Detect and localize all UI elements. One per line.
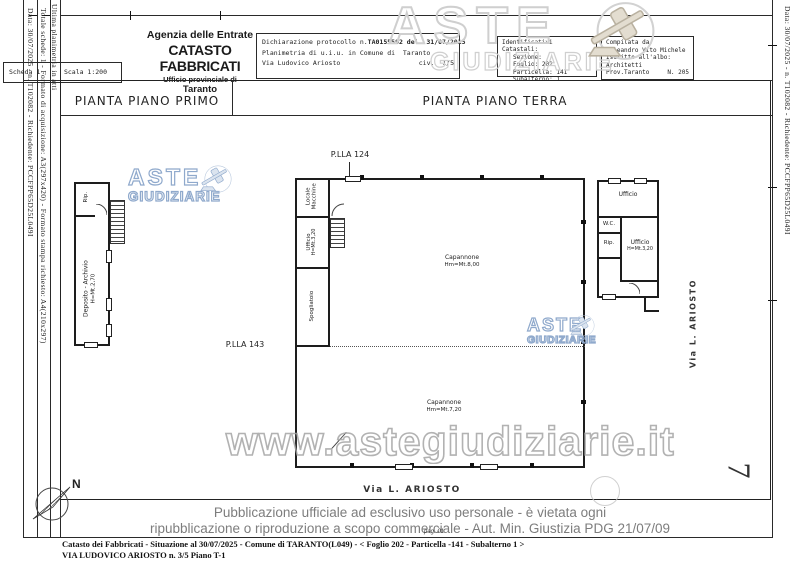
- pilaster: [470, 463, 474, 468]
- footer-page-note: pag. 01: [424, 529, 444, 535]
- title-divider: [232, 80, 233, 115]
- rb-ufficio-label: Ufficio H=Mt.3,20: [622, 240, 658, 252]
- window: [634, 178, 647, 184]
- rb-wc: W.C.: [597, 221, 621, 227]
- catastali-foglio: Foglio: 202: [502, 61, 592, 68]
- agency-name: Agenzia delle Entrate: [135, 29, 265, 41]
- parcel-124-leader: [349, 162, 350, 177]
- capannone-high-label: Capannone Hm=Mt.8,00: [430, 255, 494, 268]
- sidebar-print-format: Totale schede: 1 - Formato di acquisizio…: [39, 8, 48, 344]
- rb-stub-h: [644, 310, 659, 312]
- pilaster: [581, 280, 586, 284]
- top-rule: [60, 15, 772, 16]
- catastali-title: Identificativi Catastali:: [502, 39, 592, 54]
- opening: [480, 464, 498, 470]
- first-floor-rip-wall: [76, 215, 95, 217]
- pilaster: [350, 463, 354, 468]
- rb-ufficio-name: Ufficio: [622, 240, 658, 247]
- compilata-albo-value: Architetti: [606, 62, 689, 70]
- pilaster: [540, 175, 544, 180]
- register-tick: [768, 45, 777, 46]
- rb-wall-porch: [620, 280, 659, 282]
- protocol-value: TA0155592 del 31/07/2015: [368, 38, 466, 47]
- disclaimer-line2: ripubblicazione o riproduzione a scopo c…: [60, 521, 760, 536]
- ufficio-wall: [295, 267, 330, 269]
- sidebar-right-print-data: Data: 30/07/2025 - n. T102082 - Richiede…: [783, 6, 792, 235]
- parcel-124: P.LLA 124: [325, 150, 375, 159]
- capannone2-name: Capannone: [412, 400, 476, 407]
- height-divider-dotted: [330, 346, 585, 347]
- room-rip-first: Rip.: [83, 185, 89, 209]
- window: [106, 324, 112, 337]
- opening: [345, 176, 361, 182]
- right-guide: [772, 0, 773, 538]
- ground-stair: [330, 218, 345, 248]
- footer-address-line: VIA LUDOVICO ARIOSTO n. 3/5 Piano T-1: [62, 550, 226, 560]
- declaration-civ: civ. 1/5: [419, 59, 454, 68]
- compilata-title: Compilata da:: [606, 39, 689, 47]
- room-spogliatoio: Spogliatoio: [309, 279, 315, 333]
- deposito-name: Deposito - Archivio: [83, 254, 90, 324]
- room-deposito-label: Deposito - Archivio H=Mt.2,70: [83, 254, 96, 324]
- rb-wall-rip: [597, 257, 622, 259]
- capannone1-name: Capannone: [430, 255, 494, 262]
- declaration-street: Via Ludovico Ariosto: [262, 59, 340, 68]
- room-locale-macchine: Locale Macchine: [306, 176, 319, 216]
- north-letter: N: [72, 477, 81, 491]
- ufficio-line2: H=Mt.3,20: [312, 222, 318, 262]
- register-tick: [130, 11, 131, 20]
- window: [106, 298, 112, 311]
- opening: [395, 464, 413, 470]
- window: [608, 178, 621, 184]
- street-label-right: Via L. ARIOSTO: [688, 269, 697, 379]
- rb-ufficio-top: Ufficio: [597, 192, 659, 199]
- title-underline: [60, 115, 772, 116]
- pilaster: [420, 175, 424, 180]
- protocol-label: Dichiarazione protocollo n.: [262, 38, 368, 47]
- pilaster: [581, 400, 586, 404]
- compilata-num: N. 205: [667, 69, 689, 77]
- scan-page-number: 7: [721, 454, 758, 488]
- first-floor-stair: [110, 200, 125, 244]
- left-rooms-wall: [328, 178, 330, 347]
- scheda-value: 1: [32, 68, 40, 77]
- compilata-albo-label: Iscritto all'albo:: [606, 54, 689, 62]
- sidebar-print-data: Data: 30/07/2025 - n. T102082 - Richiede…: [26, 8, 35, 237]
- opening: [602, 294, 616, 300]
- rb-ufficio-height: H=Mt.3,20: [622, 247, 658, 253]
- declaration-line2: Planimetria di u.i.u. in Comune di Taran…: [262, 49, 454, 58]
- pilaster: [530, 463, 534, 468]
- compilata-name: Galeandro Vito Michele: [606, 47, 689, 55]
- footer-catasto-line: Catasto dei Fabbricati - Situazione al 3…: [62, 539, 524, 549]
- room-ufficio-ground: Ufficio H=Mt.3,20: [306, 222, 318, 262]
- capannone2-height: Hm=Mt.7,20: [412, 407, 476, 413]
- pilaster: [480, 175, 484, 180]
- catastali-particella: Particella: 141: [502, 69, 592, 76]
- door-arc: [628, 283, 640, 295]
- compilata-prov: Prov.Taranto: [606, 69, 649, 77]
- catastali-sezione: Sezione:: [502, 54, 592, 61]
- catasto-title: CATASTO FABBRICATI: [135, 42, 265, 74]
- disclaimer-line1: Pubblicazione ufficiale ad esclusivo uso…: [100, 505, 720, 520]
- rb-wall-wc: [597, 232, 622, 234]
- door-arc: [331, 203, 344, 216]
- locale-line2: Macchine: [312, 176, 318, 216]
- deposito-height: H=Mt.2,70: [90, 254, 96, 324]
- catastali-box: Identificativi Catastali: Sezione: Fogli…: [497, 36, 597, 77]
- spogliatoio-wall: [295, 345, 330, 347]
- capannone-low-label: Capannone Hm=Mt.7,20: [412, 400, 476, 413]
- street-label-bottom: Via L. ARIOSTO: [312, 485, 512, 495]
- rb-rip: Rip.: [597, 240, 621, 246]
- title-first-floor: PIANTA PIANO PRIMO: [62, 95, 232, 109]
- window: [106, 250, 112, 263]
- rb-wall-top: [597, 216, 659, 218]
- title-ground-floor: PIANTA PIANO TERRA: [380, 95, 610, 109]
- footer-rule: [23, 537, 772, 538]
- capannone1-height: Hm=Mt.8,00: [430, 262, 494, 268]
- north-compass: N: [28, 476, 90, 526]
- window: [84, 342, 98, 348]
- planimetria-catastale-page: Data: 30/07/2025 - n. T102082 - Richiede…: [0, 0, 800, 566]
- scala-value: Scala 1:200: [64, 68, 121, 77]
- door-arc: [95, 204, 107, 216]
- pilaster: [581, 220, 586, 224]
- parcel-143: P.LLA 143: [220, 340, 270, 349]
- declaration-box: Dichiarazione protocollo n. TA0155592 de…: [256, 33, 460, 79]
- register-tick: [220, 11, 221, 20]
- scheda-label: Scheda: [4, 68, 32, 77]
- pilaster: [581, 340, 586, 344]
- compilata-box: Compilata da: Galeandro Vito Michele Isc…: [601, 36, 694, 80]
